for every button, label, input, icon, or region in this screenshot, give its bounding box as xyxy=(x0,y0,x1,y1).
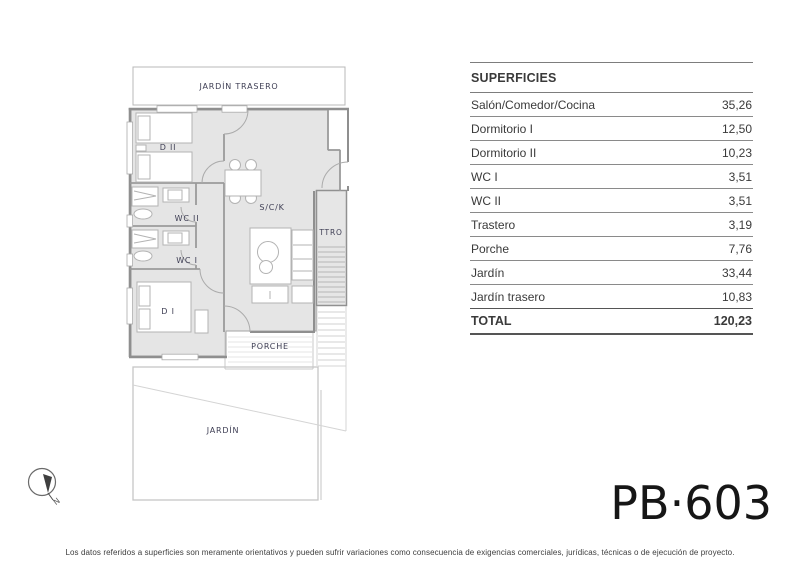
floor-plan-sheet: JARDÍN TRASERO D II WC II WC I D I S/C/K… xyxy=(0,0,800,565)
label-wc-2: WC II xyxy=(175,214,200,223)
table-row: Trastero 3,19 xyxy=(470,213,753,237)
label-wc-1: WC I xyxy=(176,256,198,265)
table-row: Jardín trasero 10,83 xyxy=(470,285,753,309)
row-value: 3,51 xyxy=(729,194,752,208)
row-value: 33,44 xyxy=(722,266,752,280)
table-row: Salón/Comedor/Cocina 35,26 xyxy=(470,93,753,117)
row-label: Salón/Comedor/Cocina xyxy=(471,98,595,112)
row-label: Trastero xyxy=(471,218,515,232)
table-row: Dormitorio I 12,50 xyxy=(470,117,753,141)
table-row: WC II 3,51 xyxy=(470,189,753,213)
total-value: 120,23 xyxy=(714,314,752,328)
table-row: Dormitorio II 10,23 xyxy=(470,141,753,165)
label-jardin: JARDÍN xyxy=(206,424,240,435)
table-row: WC I 3,51 xyxy=(470,165,753,189)
label-trastero: TTRO xyxy=(318,228,342,237)
svg-text:N: N xyxy=(52,496,62,507)
label-porche: PORCHE xyxy=(251,342,289,351)
surfaces-table: SUPERFICIES Salón/Comedor/Cocina 35,26 D… xyxy=(470,62,753,335)
row-label: Jardín xyxy=(471,266,504,280)
table-row: Porche 7,76 xyxy=(470,237,753,261)
unit-code: PB·603 xyxy=(610,480,772,526)
row-value: 7,76 xyxy=(729,242,752,256)
row-label: Jardín trasero xyxy=(471,290,545,304)
total-label: TOTAL xyxy=(471,314,512,328)
label-dormitorio-2: D II xyxy=(160,143,177,152)
label-dormitorio-1: D I xyxy=(161,307,174,316)
row-value: 12,50 xyxy=(722,122,752,136)
row-label: WC I xyxy=(471,170,498,184)
row-value: 10,83 xyxy=(722,290,752,304)
surfaces-table-title: SUPERFICIES xyxy=(470,62,753,93)
row-value: 3,19 xyxy=(729,218,752,232)
table-total-row: TOTAL 120,23 xyxy=(470,308,753,335)
row-value: 35,26 xyxy=(722,98,752,112)
row-label: Porche xyxy=(471,242,509,256)
disclaimer-text: Los datos referidos a superficies son me… xyxy=(0,548,800,557)
row-value: 3,51 xyxy=(729,170,752,184)
table-row: Jardín 33,44 xyxy=(470,261,753,285)
jardin-area xyxy=(133,366,346,500)
row-label: Dormitorio I xyxy=(471,122,533,136)
label-jardin-trasero: JARDÍN TRASERO xyxy=(198,80,278,91)
trastero-room xyxy=(317,191,347,306)
label-sck: S/C/K xyxy=(259,203,284,212)
compass-north-icon: N xyxy=(29,469,62,507)
row-label: WC II xyxy=(471,194,501,208)
stairs-exterior xyxy=(317,306,346,366)
row-label: Dormitorio II xyxy=(471,146,536,160)
row-value: 10,23 xyxy=(722,146,752,160)
